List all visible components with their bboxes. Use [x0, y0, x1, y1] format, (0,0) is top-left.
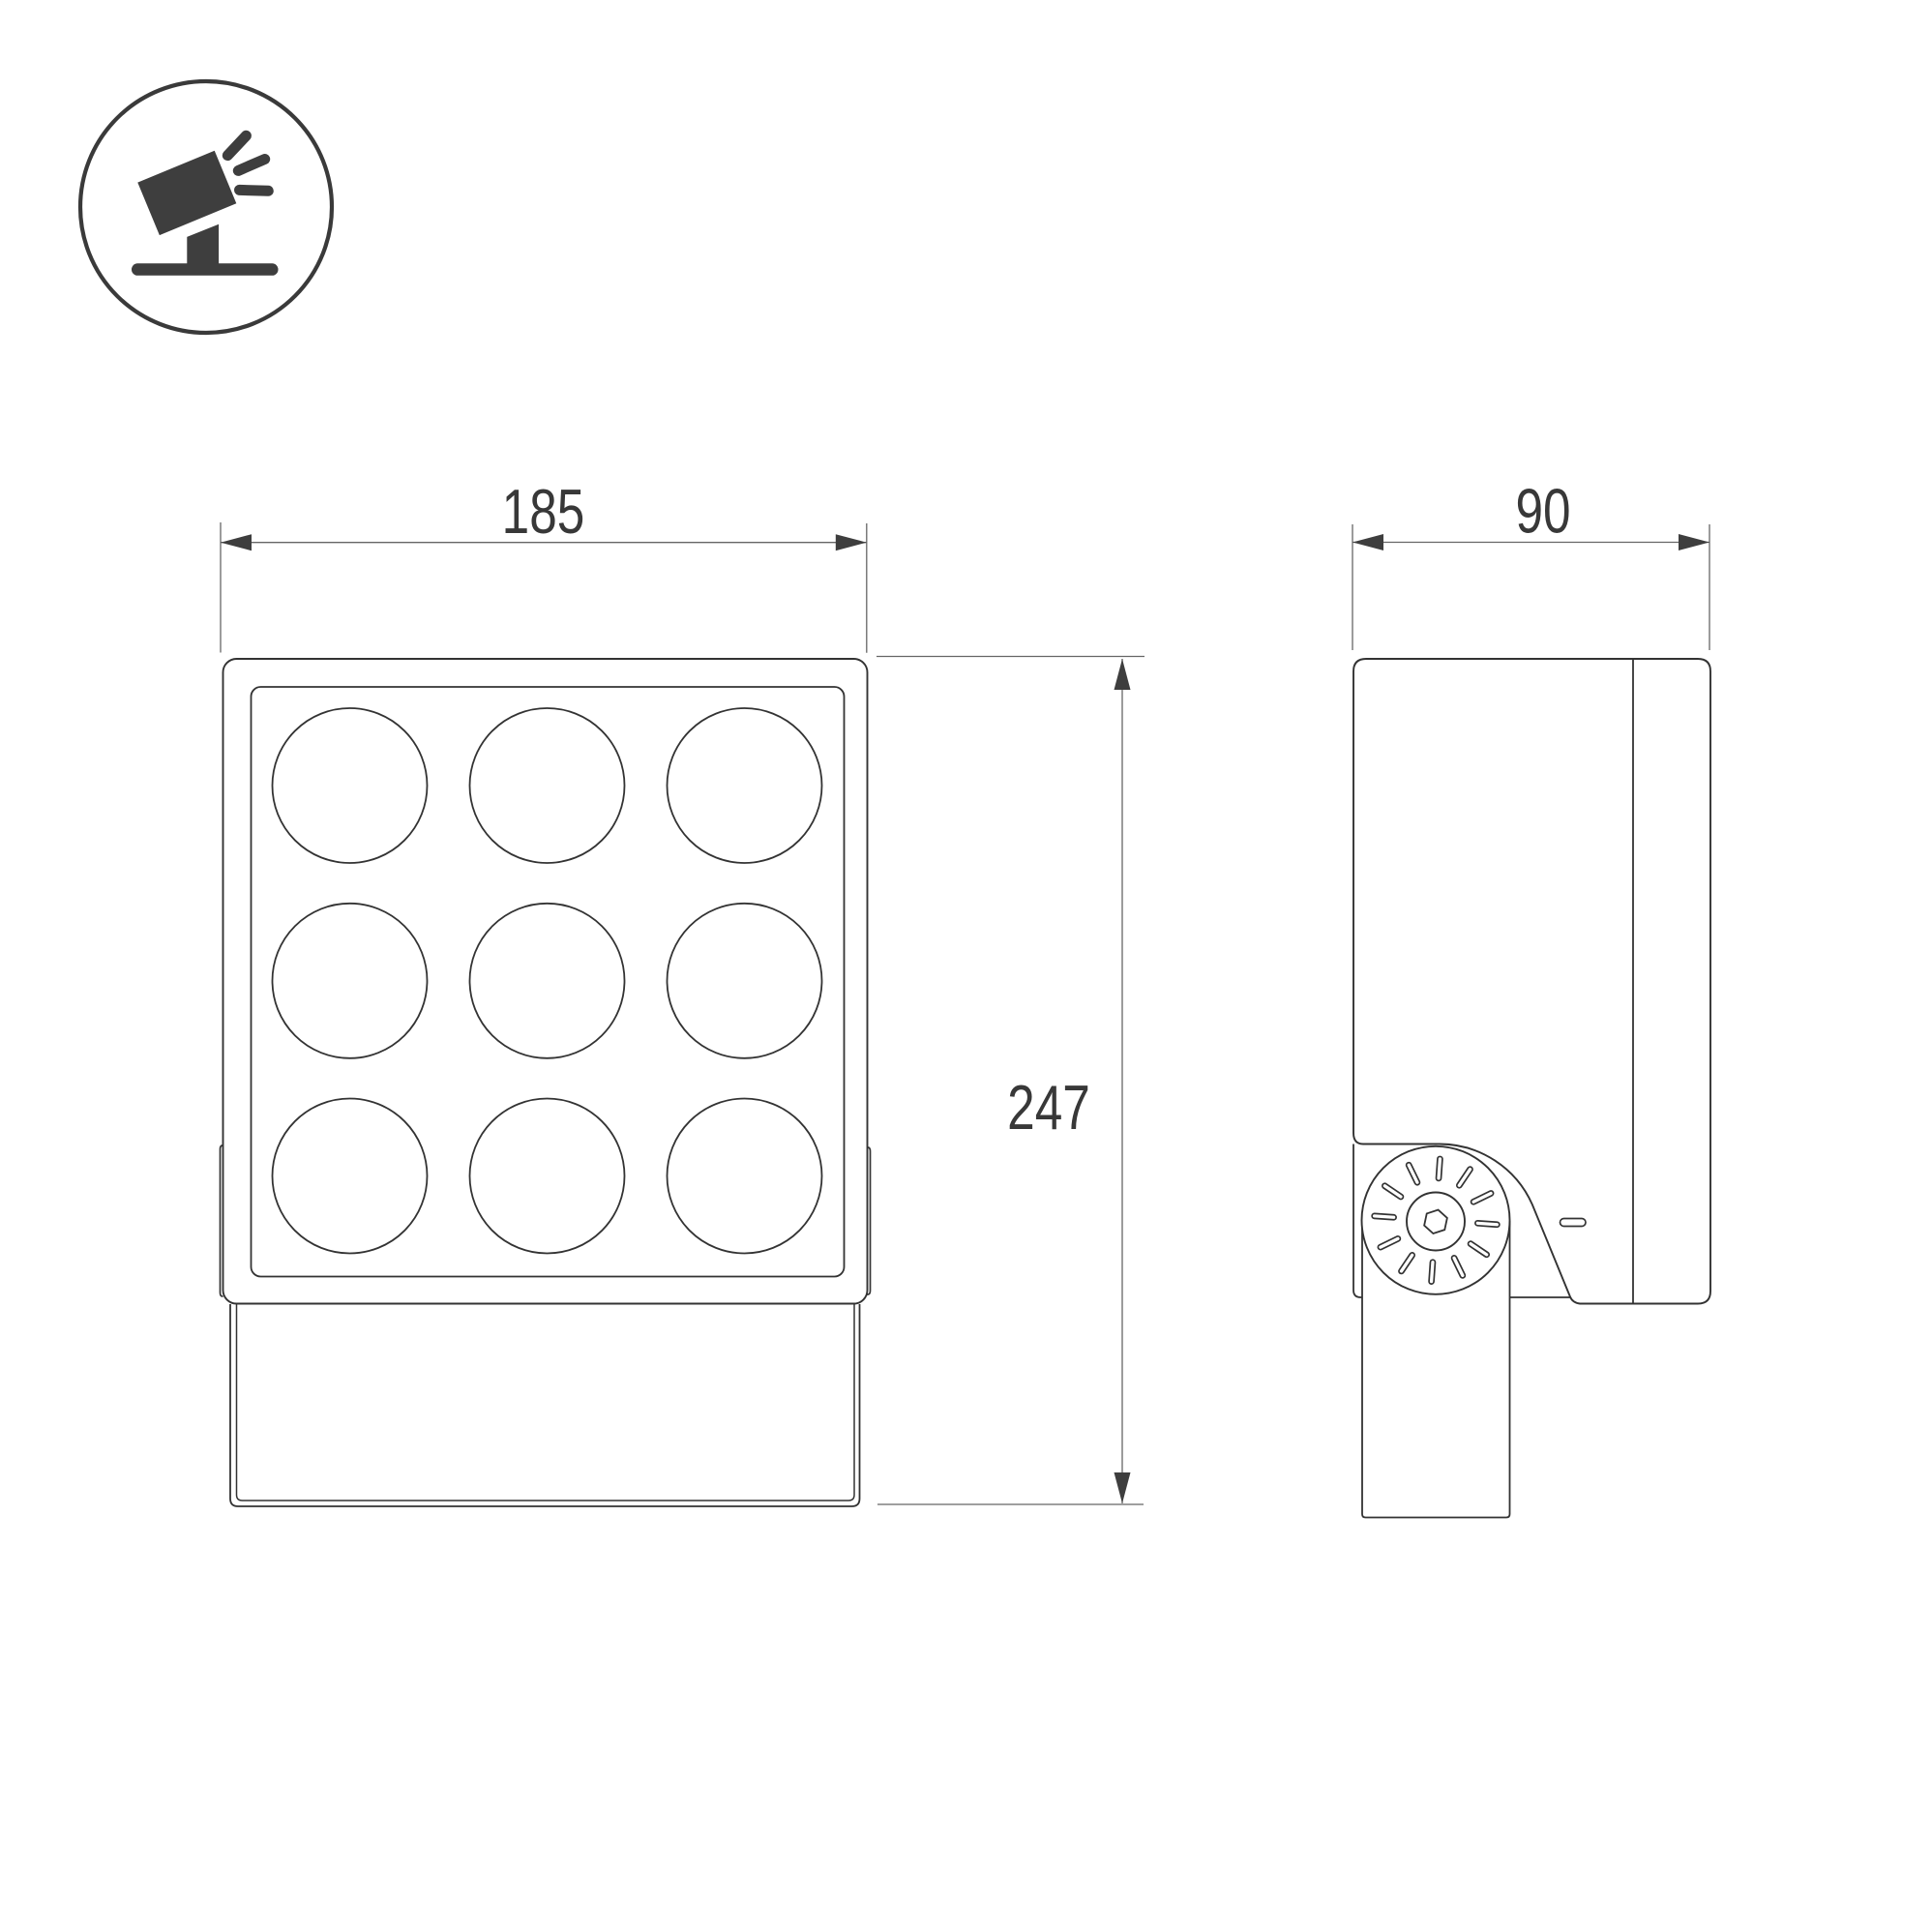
svg-text:247: 247 [1007, 1073, 1090, 1143]
svg-text:185: 185 [502, 477, 585, 547]
svg-text:90: 90 [1515, 477, 1570, 547]
